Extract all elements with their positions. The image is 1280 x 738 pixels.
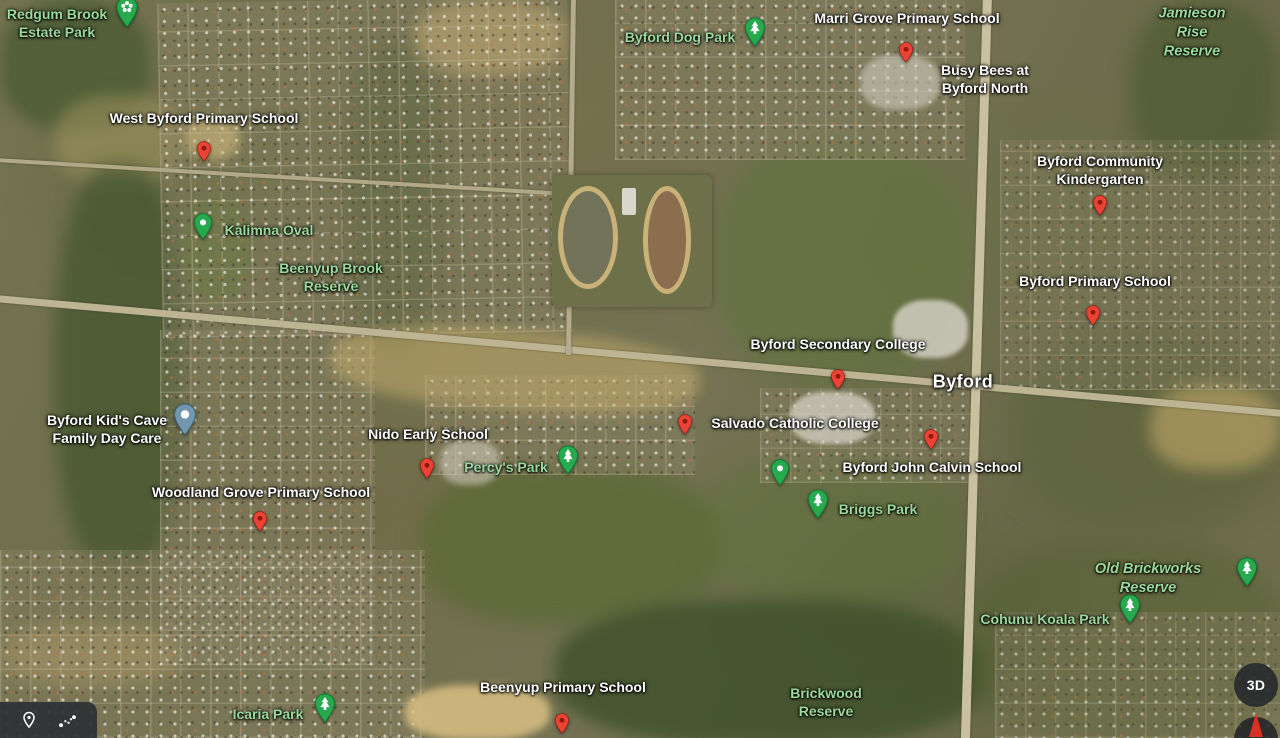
3d-view-button[interactable]: 3D [1234, 663, 1278, 707]
red-pin-icon [420, 458, 435, 479]
location-pin-tool[interactable] [17, 708, 41, 732]
green-dot-pin-park[interactable] [771, 459, 790, 491]
green-tree-pin-byford-dog-park[interactable] [744, 17, 766, 52]
flower-pin-icon [115, 0, 139, 28]
red-pin-nido-early-school[interactable] [420, 458, 435, 484]
map-label-woodland-grove-primary-school[interactable]: Woodland Grove Primary School [152, 483, 370, 501]
poi-layer: Redgum Brook Estate ParkWest Byford Prim… [0, 0, 1280, 738]
map-label-icaria-park[interactable]: Icaria Park [233, 705, 304, 723]
map-label-busy-bees-at-byford-north[interactable]: Busy Bees at Byford North [941, 61, 1029, 97]
green-tree-pin-old-brickworks-reserve[interactable] [1236, 557, 1258, 592]
map-label-byford[interactable]: Byford [933, 370, 993, 393]
red-pin-icon [899, 42, 914, 63]
map-label-kalimna-oval[interactable]: Kalimna Oval [225, 221, 314, 239]
red-pin-byford-secondary-college[interactable] [831, 369, 846, 395]
green-tree-pin-briggs-park[interactable] [807, 489, 829, 524]
map-label-byford-secondary-college[interactable]: Byford Secondary College [750, 335, 925, 353]
location-pin-icon [19, 710, 39, 730]
red-pin-west-byford-primary-school[interactable] [197, 141, 212, 167]
red-pin-woodland-grove-primary-school[interactable] [253, 511, 268, 537]
map-label-cohunu-koala-park[interactable]: Cohunu Koala Park [980, 610, 1109, 628]
red-pin-byford-john-calvin-school[interactable] [924, 429, 939, 455]
blue-dot-pin-byford-kid-s-cave-family-day-care[interactable] [173, 403, 198, 441]
map-label-redgum-brook-estate-park[interactable]: Redgum Brook Estate Park [7, 5, 107, 41]
map-label-percy-s-park[interactable]: Percy's Park [464, 458, 548, 476]
dot-pin-icon [771, 459, 790, 486]
map-label-nido-early-school[interactable]: Nido Early School [368, 425, 488, 443]
tree-pin-icon [314, 693, 336, 723]
red-pin-icon [1093, 195, 1108, 216]
red-pin-salvado-catholic-college[interactable] [678, 414, 693, 440]
map-tools-panel [0, 702, 97, 738]
green-dot-pin-kalimna-oval[interactable] [194, 213, 213, 245]
tree-pin-icon [557, 445, 579, 475]
map-label-west-byford-primary-school[interactable]: West Byford Primary School [110, 109, 299, 127]
map-label-briggs-park[interactable]: Briggs Park [839, 500, 918, 518]
red-pin-icon [831, 369, 846, 390]
map-label-byford-primary-school[interactable]: Byford Primary School [1019, 272, 1171, 290]
map-label-beenyup-brook-reserve[interactable]: Beenyup Brook Reserve [279, 259, 382, 295]
map-label-old-brickworks-reserve[interactable]: Old Brickworks Reserve [1082, 560, 1214, 598]
map-label-beenyup-primary-school[interactable]: Beenyup Primary School [480, 678, 646, 696]
map-label-brickwood-reserve[interactable]: Brickwood Reserve [790, 684, 862, 720]
red-pin-icon [253, 511, 268, 532]
red-pin-byford-primary-school[interactable] [1086, 305, 1101, 331]
map-label-byford-john-calvin-school[interactable]: Byford John Calvin School [843, 458, 1022, 476]
green-tree-pin-cohunu-koala-park[interactable] [1119, 594, 1141, 629]
compass-north-needle-icon [1249, 713, 1263, 737]
measure-distance-tool[interactable] [56, 708, 80, 732]
blue-pin-icon [173, 403, 198, 436]
red-pin-icon [924, 429, 939, 450]
red-pin-marri-grove-primary-school[interactable] [899, 42, 914, 68]
map-label-byford-dog-park[interactable]: Byford Dog Park [625, 28, 735, 46]
green-tree-pin-icaria-park[interactable] [314, 693, 336, 728]
green-flower-pin-redgum-brook-estate-park[interactable] [115, 0, 139, 33]
tree-pin-icon [1236, 557, 1258, 587]
map-label-byford-kid-s-cave-family-day-care[interactable]: Byford Kid's Cave Family Day Care [47, 411, 167, 447]
red-pin-icon [678, 414, 693, 435]
red-pin-beenyup-primary-school[interactable] [555, 713, 570, 738]
map-label-jamieson-rise-reserve[interactable]: Jamieson Rise Reserve [1148, 5, 1236, 62]
dot-pin-icon [194, 213, 213, 240]
measure-distance-icon [57, 710, 78, 731]
satellite-map-viewport[interactable]: Redgum Brook Estate ParkWest Byford Prim… [0, 0, 1280, 738]
green-tree-pin-percy-s-park[interactable] [557, 445, 579, 480]
tree-pin-icon [1119, 594, 1141, 624]
red-pin-byford-community-kindergarten[interactable] [1093, 195, 1108, 221]
map-label-salvado-catholic-college[interactable]: Salvado Catholic College [711, 414, 878, 432]
red-pin-icon [1086, 305, 1101, 326]
map-label-marri-grove-primary-school[interactable]: Marri Grove Primary School [814, 9, 999, 27]
red-pin-icon [197, 141, 212, 162]
tree-pin-icon [807, 489, 829, 519]
tree-pin-icon [744, 17, 766, 47]
red-pin-icon [555, 713, 570, 734]
map-label-byford-community-kindergarten[interactable]: Byford Community Kindergarten [1010, 152, 1190, 188]
